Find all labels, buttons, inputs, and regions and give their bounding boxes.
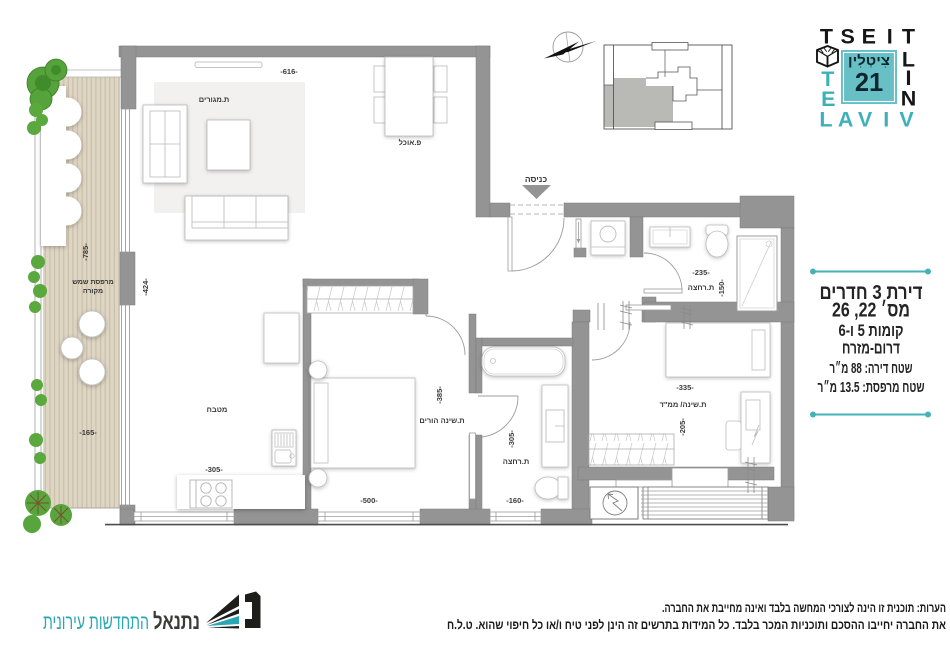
svg-text:הערות: תוכנית זו הינה לצורכי ה: הערות: תוכנית זו הינה לצורכי המחשה בלבד … xyxy=(662,601,946,615)
svg-text:I: I xyxy=(887,25,893,49)
svg-text:מטבח: מטבח xyxy=(207,405,228,414)
svg-text:-150-: -150- xyxy=(717,279,726,297)
svg-text:-500-: -500- xyxy=(360,496,378,505)
svg-text:-385-: -385- xyxy=(435,386,444,404)
svg-text:פ.אוכל: פ.אוכל xyxy=(399,138,422,147)
svg-text:דרום-מזרח: דרום-מזרח xyxy=(842,340,900,358)
svg-text:נתנאל: נתנאל xyxy=(153,609,200,634)
svg-text:ת.רחצה: ת.רחצה xyxy=(688,283,714,292)
svg-text:-235-: -235- xyxy=(692,268,710,277)
svg-text:-160-: -160- xyxy=(506,496,524,505)
svg-text:קומות 5 ו-6: קומות 5 ו-6 xyxy=(839,322,904,340)
svg-text:21: 21 xyxy=(855,69,883,97)
svg-text:מס׳ 22, 26: מס׳ 22, 26 xyxy=(832,299,910,322)
svg-text:V: V xyxy=(858,108,873,132)
svg-text:ת.רחצה: ת.רחצה xyxy=(503,457,529,466)
svg-text:-305-: -305- xyxy=(507,430,516,448)
svg-text:-305-: -305- xyxy=(205,465,223,474)
svg-text:-335-: -335- xyxy=(676,383,694,392)
svg-text:כניסה: כניסה xyxy=(525,174,548,184)
svg-text:-616-: -616- xyxy=(280,67,298,76)
svg-text:A: A xyxy=(838,108,854,132)
svg-text:ת.שינה הורים: ת.שינה הורים xyxy=(419,416,464,425)
svg-text:S: S xyxy=(841,25,855,49)
svg-text:T: T xyxy=(820,25,833,49)
svg-text:-205-: -205- xyxy=(678,418,687,436)
svg-text:I: I xyxy=(883,108,889,132)
svg-text:V: V xyxy=(899,108,914,132)
svg-text:E: E xyxy=(862,25,876,49)
svg-text:-165-: -165- xyxy=(79,428,97,437)
svg-text:L: L xyxy=(819,108,832,132)
svg-text:שטח דירה: 88 מ״ר: שטח דירה: 88 מ״ר xyxy=(830,361,913,377)
svg-text:מרפסת שמש: מרפסת שמש xyxy=(72,279,114,286)
svg-text:התחדשות עירונית: התחדשות עירונית xyxy=(43,611,149,634)
svg-text:שטח מרפסת: 13.5 מ״ר: שטח מרפסת: 13.5 מ״ר xyxy=(817,380,924,396)
svg-text:את החברה יחייבו ההסכם ותוכניות: את החברה יחייבו ההסכם ותוכניות המכר בלבד… xyxy=(447,618,946,632)
svg-text:ת.שינה/ ממ"ד: ת.שינה/ ממ"ד xyxy=(659,400,706,409)
svg-text:מקורה: מקורה xyxy=(83,288,103,295)
svg-text:T: T xyxy=(902,25,915,49)
svg-text:ת.מגורים: ת.מגורים xyxy=(199,95,230,104)
svg-text:-424-: -424- xyxy=(141,278,150,296)
svg-text:-785-: -785- xyxy=(81,243,90,261)
svg-text:צִיטְלִין: צִיטְלִין xyxy=(848,53,890,68)
